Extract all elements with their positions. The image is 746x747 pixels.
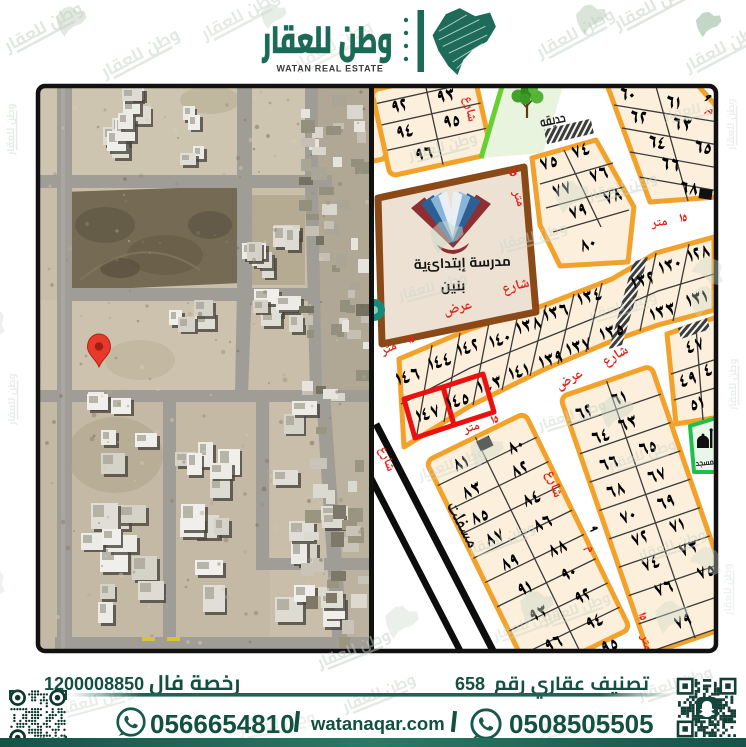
svg-text:658: 658 <box>455 674 485 694</box>
svg-text:WATAN REAL ESTATE: WATAN REAL ESTATE <box>276 64 383 74</box>
svg-text:watanaqar.com: watanaqar.com <box>310 713 445 734</box>
svg-text:0566654810: 0566654810 <box>150 709 295 739</box>
svg-text:0508505505: 0508505505 <box>509 709 654 739</box>
